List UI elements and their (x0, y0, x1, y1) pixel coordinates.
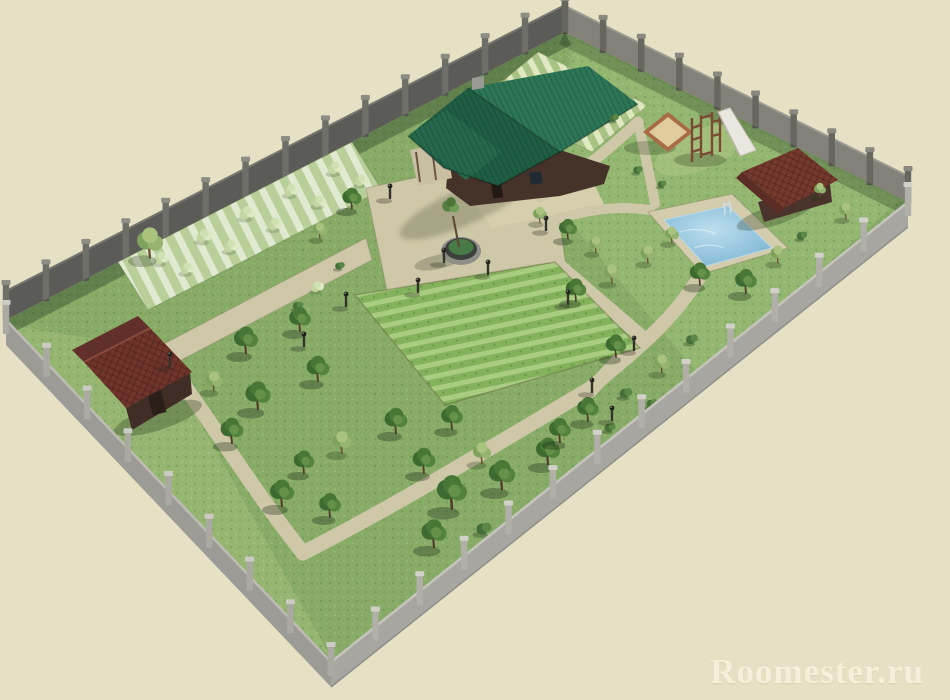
fence-post (905, 186, 911, 216)
fence-post-cap (561, 0, 570, 1)
fence-post (402, 78, 408, 116)
fence-post (522, 17, 528, 55)
fence-post-cap (751, 90, 760, 95)
fence-post (3, 304, 9, 334)
fence-post (482, 37, 488, 75)
fence-post (600, 19, 606, 53)
fence-post-cap (904, 166, 913, 171)
fence-post-cap (865, 147, 874, 152)
planter-plants (449, 239, 474, 255)
fence-post-cap (675, 53, 684, 58)
fence-post-cap (42, 343, 51, 348)
fence-post-cap (2, 280, 11, 285)
fence-post (163, 202, 169, 240)
fence-post-cap (281, 136, 290, 141)
fence-post-cap (460, 536, 469, 541)
watermark: Roomester.ru (710, 652, 924, 692)
fence-post-cap (713, 72, 722, 77)
fence-post-cap (81, 239, 90, 244)
fence-post (562, 0, 568, 34)
fence-post-cap (371, 607, 380, 612)
fence-post-cap (201, 177, 210, 182)
fence-post (594, 434, 600, 464)
fence-post (417, 575, 423, 605)
fence-post (287, 603, 293, 633)
fence-post (829, 132, 835, 166)
fence-post (714, 76, 720, 110)
fence-post (123, 222, 129, 260)
fence-post (550, 469, 556, 499)
fence-post-cap (521, 13, 530, 18)
fence-post-cap (481, 33, 490, 38)
fence-post-cap (599, 15, 608, 20)
fence-post-cap (205, 514, 214, 519)
fence-post (362, 99, 368, 137)
fence-post-cap (637, 34, 646, 39)
fence-post-cap (859, 217, 868, 222)
fence-post-cap (41, 259, 50, 264)
house-window (529, 171, 543, 185)
fence-post-cap (401, 74, 410, 79)
fence-post-cap (593, 430, 602, 435)
fence-post (247, 561, 253, 591)
fence-post (202, 181, 208, 219)
fence-post (372, 611, 378, 641)
fence-post-cap (827, 128, 836, 133)
fence-post (752, 94, 758, 128)
landscape-plan-rendering (0, 0, 950, 700)
fence-post-cap (904, 182, 913, 187)
fence-post-cap (327, 642, 336, 647)
fence-post (816, 257, 822, 287)
fence-post-cap (83, 386, 92, 391)
fence-post (206, 518, 212, 548)
fence-post-cap (504, 500, 513, 505)
fence-post (328, 646, 334, 676)
fence-post-cap (241, 157, 250, 162)
fence-post (125, 432, 131, 462)
fence-post-cap (441, 54, 450, 59)
fence-post-cap (321, 115, 330, 120)
fence-post-cap (415, 571, 424, 576)
fence-post (461, 540, 467, 570)
fence-post (242, 161, 248, 199)
fence-post-cap (361, 95, 370, 100)
fence-post-cap (770, 288, 779, 293)
fence-post-cap (789, 109, 798, 114)
fence-post (790, 113, 796, 147)
fence-post-cap (726, 324, 735, 329)
fence-post-cap (123, 428, 132, 433)
fence-post-cap (161, 198, 170, 203)
fence-post (772, 292, 778, 322)
fence-post (83, 243, 89, 281)
fence-post-cap (815, 253, 824, 258)
fence-post-cap (637, 394, 646, 399)
fence-post (165, 475, 171, 505)
fence-post-cap (121, 218, 130, 223)
fence-post (867, 151, 873, 185)
fence-post (638, 38, 644, 72)
fence-post (676, 57, 682, 91)
fence-post-cap (245, 557, 254, 562)
landscape-plan-image: Roomester.ru (0, 0, 950, 700)
fence-post (84, 390, 90, 420)
fence-post-cap (2, 300, 11, 305)
fence-post-cap (286, 599, 295, 604)
chimney (472, 76, 484, 90)
fence-post-cap (548, 465, 557, 470)
fence-post (43, 347, 49, 377)
fence-post-cap (164, 471, 173, 476)
fence-post (860, 221, 866, 251)
fence-post (322, 119, 328, 157)
fence-post (638, 398, 644, 428)
fence-post (442, 58, 448, 96)
fence-post-cap (682, 359, 691, 364)
fence-post (43, 263, 49, 301)
fence-post (505, 504, 511, 534)
fence-post (727, 328, 733, 358)
fence-post (282, 140, 288, 178)
fence-post (683, 363, 689, 393)
